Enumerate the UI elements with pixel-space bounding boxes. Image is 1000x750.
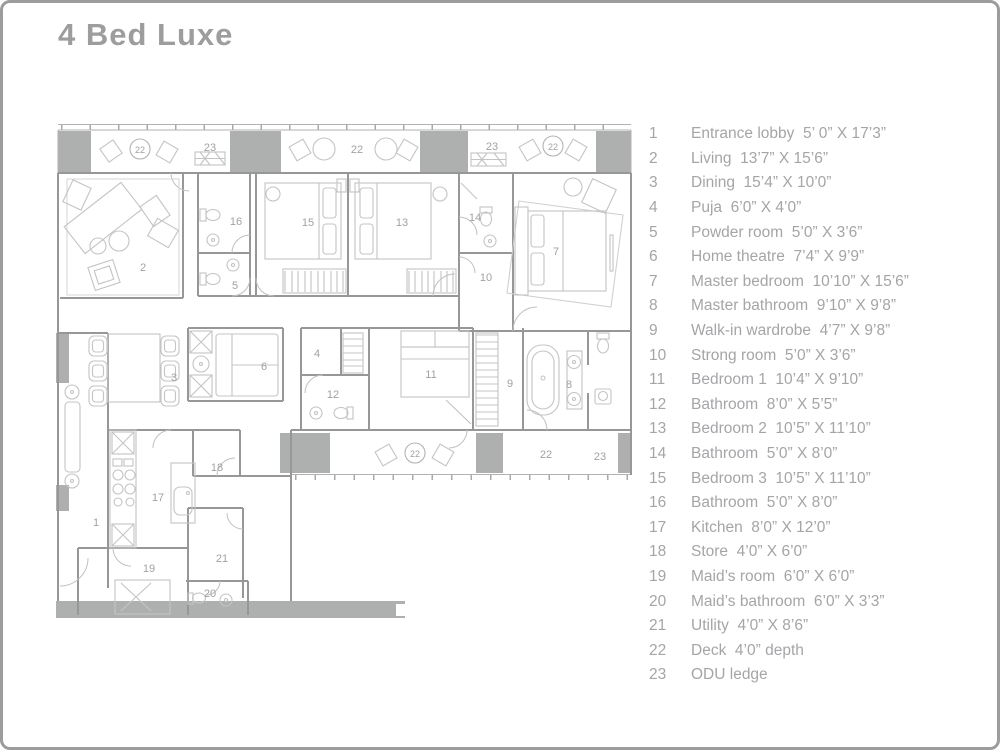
legend-item-number: 4 (649, 199, 691, 217)
room-label-kitchen: 17 (152, 492, 164, 504)
room-label-deck-top-left: 22 (135, 145, 145, 155)
floor-plan-page: 4 Bed Luxe (0, 0, 1000, 750)
legend-list: 1 Entrance lobby 5’ 0” X 17’3” 2 Living … (649, 122, 984, 688)
legend-item-label: Maid’s room 6’0” X 6’0” (691, 568, 854, 586)
legend-item: 6 Home theatre 7’4” X 9’9” (649, 245, 984, 270)
legend-item-number: 15 (649, 470, 691, 488)
legend-item: 14 Bathroom 5’0” X 8’0” (649, 442, 984, 467)
room-label-master-bathroom: 8 (566, 379, 572, 391)
legend-item-label: Maid’s bathroom 6’0” X 3’3” (691, 593, 885, 611)
legend-item: 3 Dining 15’4” X 10’0” (649, 171, 984, 196)
legend-item-number: 9 (649, 322, 691, 340)
room-label-deck-top-middle: 22 (351, 144, 363, 156)
legend-item-label: Bathroom 5’0” X 8’0” (691, 494, 837, 512)
legend-item: 16 Bathroom 5’0” X 8’0” (649, 491, 984, 516)
room-label-living: 2 (140, 262, 146, 274)
legend-item-number: 14 (649, 445, 691, 463)
legend-item-number: 22 (649, 642, 691, 660)
legend-item-number: 8 (649, 297, 691, 315)
room-label-puja: 4 (314, 348, 320, 360)
room-label-bedroom-3: 15 (302, 217, 314, 229)
legend-item-label: Entrance lobby 5’ 0” X 17’3” (691, 125, 886, 143)
room-label-odu-bottom: 23 (594, 451, 606, 463)
legend-item: 17 Kitchen 8’0” X 12’0” (649, 516, 984, 541)
legend-item: 12 Bathroom 8’0” X 5’5” (649, 393, 984, 418)
legend-item: 7 Master bedroom 10’10” X 15’6” (649, 270, 984, 295)
room-label-deck-bottom-right: 22 (540, 449, 552, 461)
legend-item-label: Bedroom 3 10’5” X 11’10” (691, 470, 871, 488)
plan-walls (58, 173, 631, 615)
legend-item: 23 ODU ledge (649, 663, 984, 688)
legend-item-label: Strong room 5’0” X 3’6” (691, 347, 856, 365)
legend-item: 13 Bedroom 2 10’5” X 11’10” (649, 417, 984, 442)
room-label-home-theatre: 6 (261, 361, 267, 373)
legend-item-number: 19 (649, 568, 691, 586)
plan-parapet-ticks (58, 125, 631, 478)
legend-item-label: ODU ledge (691, 666, 768, 684)
legend-item-number: 2 (649, 150, 691, 168)
room-label-bathroom-14: 14 (469, 212, 481, 224)
legend-item-number: 21 (649, 617, 691, 635)
legend-item-label: Deck 4’0” depth (691, 642, 804, 660)
room-label-utility: 21 (216, 553, 228, 565)
legend-item-number: 23 (649, 666, 691, 684)
room-label-bathroom-16: 16 (230, 216, 242, 228)
room-label-entrance-lobby: 1 (93, 517, 99, 529)
legend-item: 21 Utility 4’0” X 8’6” (649, 614, 984, 639)
legend-item-number: 13 (649, 420, 691, 438)
legend-item-label: Living 13’7” X 15’6” (691, 150, 828, 168)
legend-item-label: Master bathroom 9’10” X 9’8” (691, 297, 896, 315)
legend-item-label: Powder room 5’0” X 3’6” (691, 224, 862, 242)
legend-item: 10 Strong room 5’0” X 3’6” (649, 343, 984, 368)
room-label-maids-room: 19 (143, 563, 155, 575)
legend-item: 9 Walk-in wardrobe 4’7” X 9’8” (649, 319, 984, 344)
legend-item-number: 3 (649, 174, 691, 192)
legend-item-label: Puja 6’0” X 4’0” (691, 199, 801, 217)
legend-item-label: Bathroom 8’0” X 5’5” (691, 396, 837, 414)
room-label-bedroom-2: 13 (396, 217, 408, 229)
legend-item-label: Kitchen 8’0” X 12’0” (691, 519, 831, 537)
legend-item-number: 5 (649, 224, 691, 242)
room-label-odu-top-left: 23 (204, 142, 216, 154)
legend-item-number: 20 (649, 593, 691, 611)
room-label-deck-bottom-left: 22 (410, 449, 420, 459)
legend-item: 20 Maid’s bathroom 6’0” X 3’3” (649, 589, 984, 614)
legend-item: 4 Puja 6’0” X 4’0” (649, 196, 984, 221)
room-label-store: 18 (211, 462, 223, 474)
legend-item-number: 12 (649, 396, 691, 414)
plan-room-labels: 22 23 22 23 22 2 16 5 15 13 14 10 7 3 6 … (93, 141, 606, 600)
legend-item: 19 Maid’s room 6’0” X 6’0” (649, 565, 984, 590)
legend-item-label: Bathroom 5’0” X 8’0” (691, 445, 837, 463)
legend-item-label: Home theatre 7’4” X 9’9” (691, 248, 864, 266)
legend-item-label: Master bedroom 10’10” X 15’6” (691, 273, 909, 291)
legend-item: 2 Living 13’7” X 15’6” (649, 147, 984, 172)
room-label-bathroom-12: 12 (327, 389, 339, 401)
room-label-walk-in-wardrobe: 9 (507, 378, 513, 390)
room-label-deck-top-right: 22 (548, 142, 558, 152)
legend-item-number: 6 (649, 248, 691, 266)
room-label-master-bedroom: 7 (553, 246, 559, 258)
legend-item-number: 18 (649, 543, 691, 561)
legend-item: 18 Store 4’0” X 6’0” (649, 540, 984, 565)
legend-item-label: Bedroom 1 10’4” X 9’10” (691, 371, 863, 389)
legend-item: 5 Powder room 5’0” X 3’6” (649, 220, 984, 245)
legend-item-label: Utility 4’0” X 8’6” (691, 617, 808, 635)
legend-item-number: 10 (649, 347, 691, 365)
room-label-dining: 3 (171, 372, 177, 384)
legend-item: 11 Bedroom 1 10’4” X 9’10” (649, 368, 984, 393)
legend-item-number: 17 (649, 519, 691, 537)
legend-item-number: 7 (649, 273, 691, 291)
legend-item-number: 11 (649, 371, 691, 389)
legend-item-number: 1 (649, 125, 691, 143)
room-label-powder-room: 5 (232, 280, 238, 292)
legend-item: 1 Entrance lobby 5’ 0” X 17’3” (649, 122, 984, 147)
room-label-maids-bathroom: 20 (204, 588, 216, 600)
legend-item-label: Bedroom 2 10’5” X 11’10” (691, 420, 871, 438)
legend-item-label: Dining 15’4” X 10’0” (691, 174, 831, 192)
legend-item: 15 Bedroom 3 10’5” X 11’10” (649, 466, 984, 491)
legend-item-label: Store 4’0” X 6’0” (691, 543, 807, 561)
room-label-bedroom-1: 11 (425, 369, 436, 381)
legend-item-label: Walk-in wardrobe 4’7” X 9’8” (691, 322, 890, 340)
legend-item: 22 Deck 4’0” depth (649, 638, 984, 663)
room-label-odu-top-right: 23 (486, 141, 498, 153)
room-label-strong-room: 10 (480, 272, 492, 284)
legend-item-number: 16 (649, 494, 691, 512)
legend-item: 8 Master bathroom 9’10” X 9’8” (649, 294, 984, 319)
